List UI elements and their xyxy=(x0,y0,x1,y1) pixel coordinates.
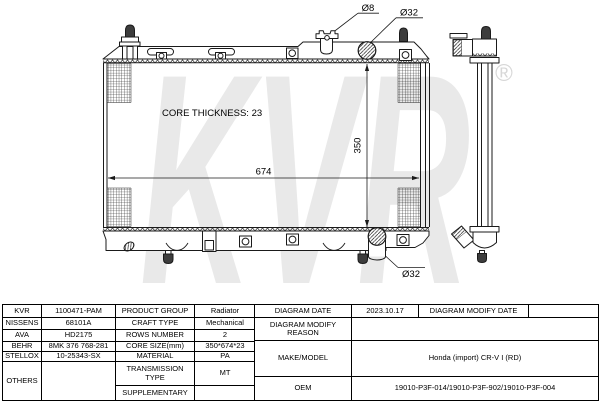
side-bottom-tank xyxy=(473,232,497,248)
cross-reference-table: KVR 1100471-PAM PRODUCT GROUP Radiator N… xyxy=(2,304,256,401)
diagram-info-table: DIAGRAM DATE 2023.10.17 DIAGRAM MODIFY D… xyxy=(254,304,599,401)
radiator-diagram: KVR ® 674 350 xyxy=(0,0,600,300)
diagram-modify-date-value xyxy=(529,305,599,318)
side-top-pin xyxy=(482,27,491,40)
bottom-left-pin xyxy=(164,254,174,264)
spec-label: CORE SIZE(mm) xyxy=(116,342,195,352)
make-model-value: Honda (import) CR-V I (RD) xyxy=(352,341,599,377)
spec-label: TRANSMISSION TYPE xyxy=(116,362,195,386)
spec-label: PRODUCT GROUP xyxy=(116,305,195,318)
spec-label: CRAFT TYPE xyxy=(116,318,195,330)
brand-name: OTHERS xyxy=(3,362,42,401)
brand-code: 8MK 376 768-281 xyxy=(42,342,116,352)
core-thickness-label: CORE THICKNESS: 23 xyxy=(162,108,262,119)
bottom-right-pin xyxy=(358,254,368,264)
brand-name: NISSENS xyxy=(3,318,42,330)
spec-value xyxy=(195,386,256,401)
inlet-dia-label: Ø32 xyxy=(400,8,418,19)
top-right-pin xyxy=(400,28,408,42)
side-top-hose-rod xyxy=(450,34,467,39)
outlet-dia-label: Ø32 xyxy=(402,269,420,280)
diagram-modify-reason-value xyxy=(352,318,599,341)
brand-name: STELLOX xyxy=(3,352,42,362)
spec-value: 2 xyxy=(195,330,256,342)
spec-label: MATERIAL xyxy=(116,352,195,362)
spec-value: Radiator xyxy=(195,305,256,318)
spec-value: Mechanical xyxy=(195,318,256,330)
brand-name: KVR xyxy=(3,305,42,318)
brand-name: BEHR xyxy=(3,342,42,352)
inlet-pipe-section xyxy=(358,42,376,60)
catalog-page: KVR ® 674 350 xyxy=(0,0,600,402)
dim-350-label: 350 xyxy=(353,138,364,154)
spec-label: SUPPLEMENTARY xyxy=(116,386,195,401)
side-top-tank xyxy=(473,39,497,56)
oem-label: OEM xyxy=(255,377,352,401)
brand-code: 1100471-PAM xyxy=(42,305,116,318)
oem-value: 19010-P3F-014/19010-P3F-902/19010-P3F-00… xyxy=(352,377,599,401)
diagram-date-label: DIAGRAM DATE xyxy=(255,305,352,318)
registered-trademark-icon: ® xyxy=(495,60,513,87)
spec-value: 350*674*23 xyxy=(195,342,256,352)
brand-name: AVA xyxy=(3,330,42,342)
diagram-modify-reason-label: DIAGRAM MODIFY REASON xyxy=(255,318,352,341)
brand-code: 10-25343-SX xyxy=(42,352,116,362)
spec-label: ROWS NUMBER xyxy=(116,330,195,342)
side-core xyxy=(478,63,493,227)
diagram-modify-date-label: DIAGRAM MODIFY DATE xyxy=(419,305,529,318)
side-drain-pin xyxy=(478,254,487,263)
make-model-label: MAKE/MODEL xyxy=(255,341,352,377)
side-bottom-flange xyxy=(470,227,499,233)
cap-dia-label: Ø8 xyxy=(362,3,375,14)
dim-674-label: 674 xyxy=(256,167,272,178)
spec-value: PA xyxy=(195,352,256,362)
side-top-flange xyxy=(470,58,499,64)
filler-cap-button xyxy=(325,36,330,41)
diagram-date-value: 2023.10.17 xyxy=(352,305,419,318)
brand-code: HD2175 xyxy=(42,330,116,342)
top-gasket-serration xyxy=(103,59,429,63)
brand-code xyxy=(42,362,116,401)
brand-code: 68101A xyxy=(42,318,116,330)
spec-value: MT xyxy=(195,362,256,386)
filler-neck xyxy=(321,39,333,55)
top-left-pin xyxy=(126,25,135,37)
